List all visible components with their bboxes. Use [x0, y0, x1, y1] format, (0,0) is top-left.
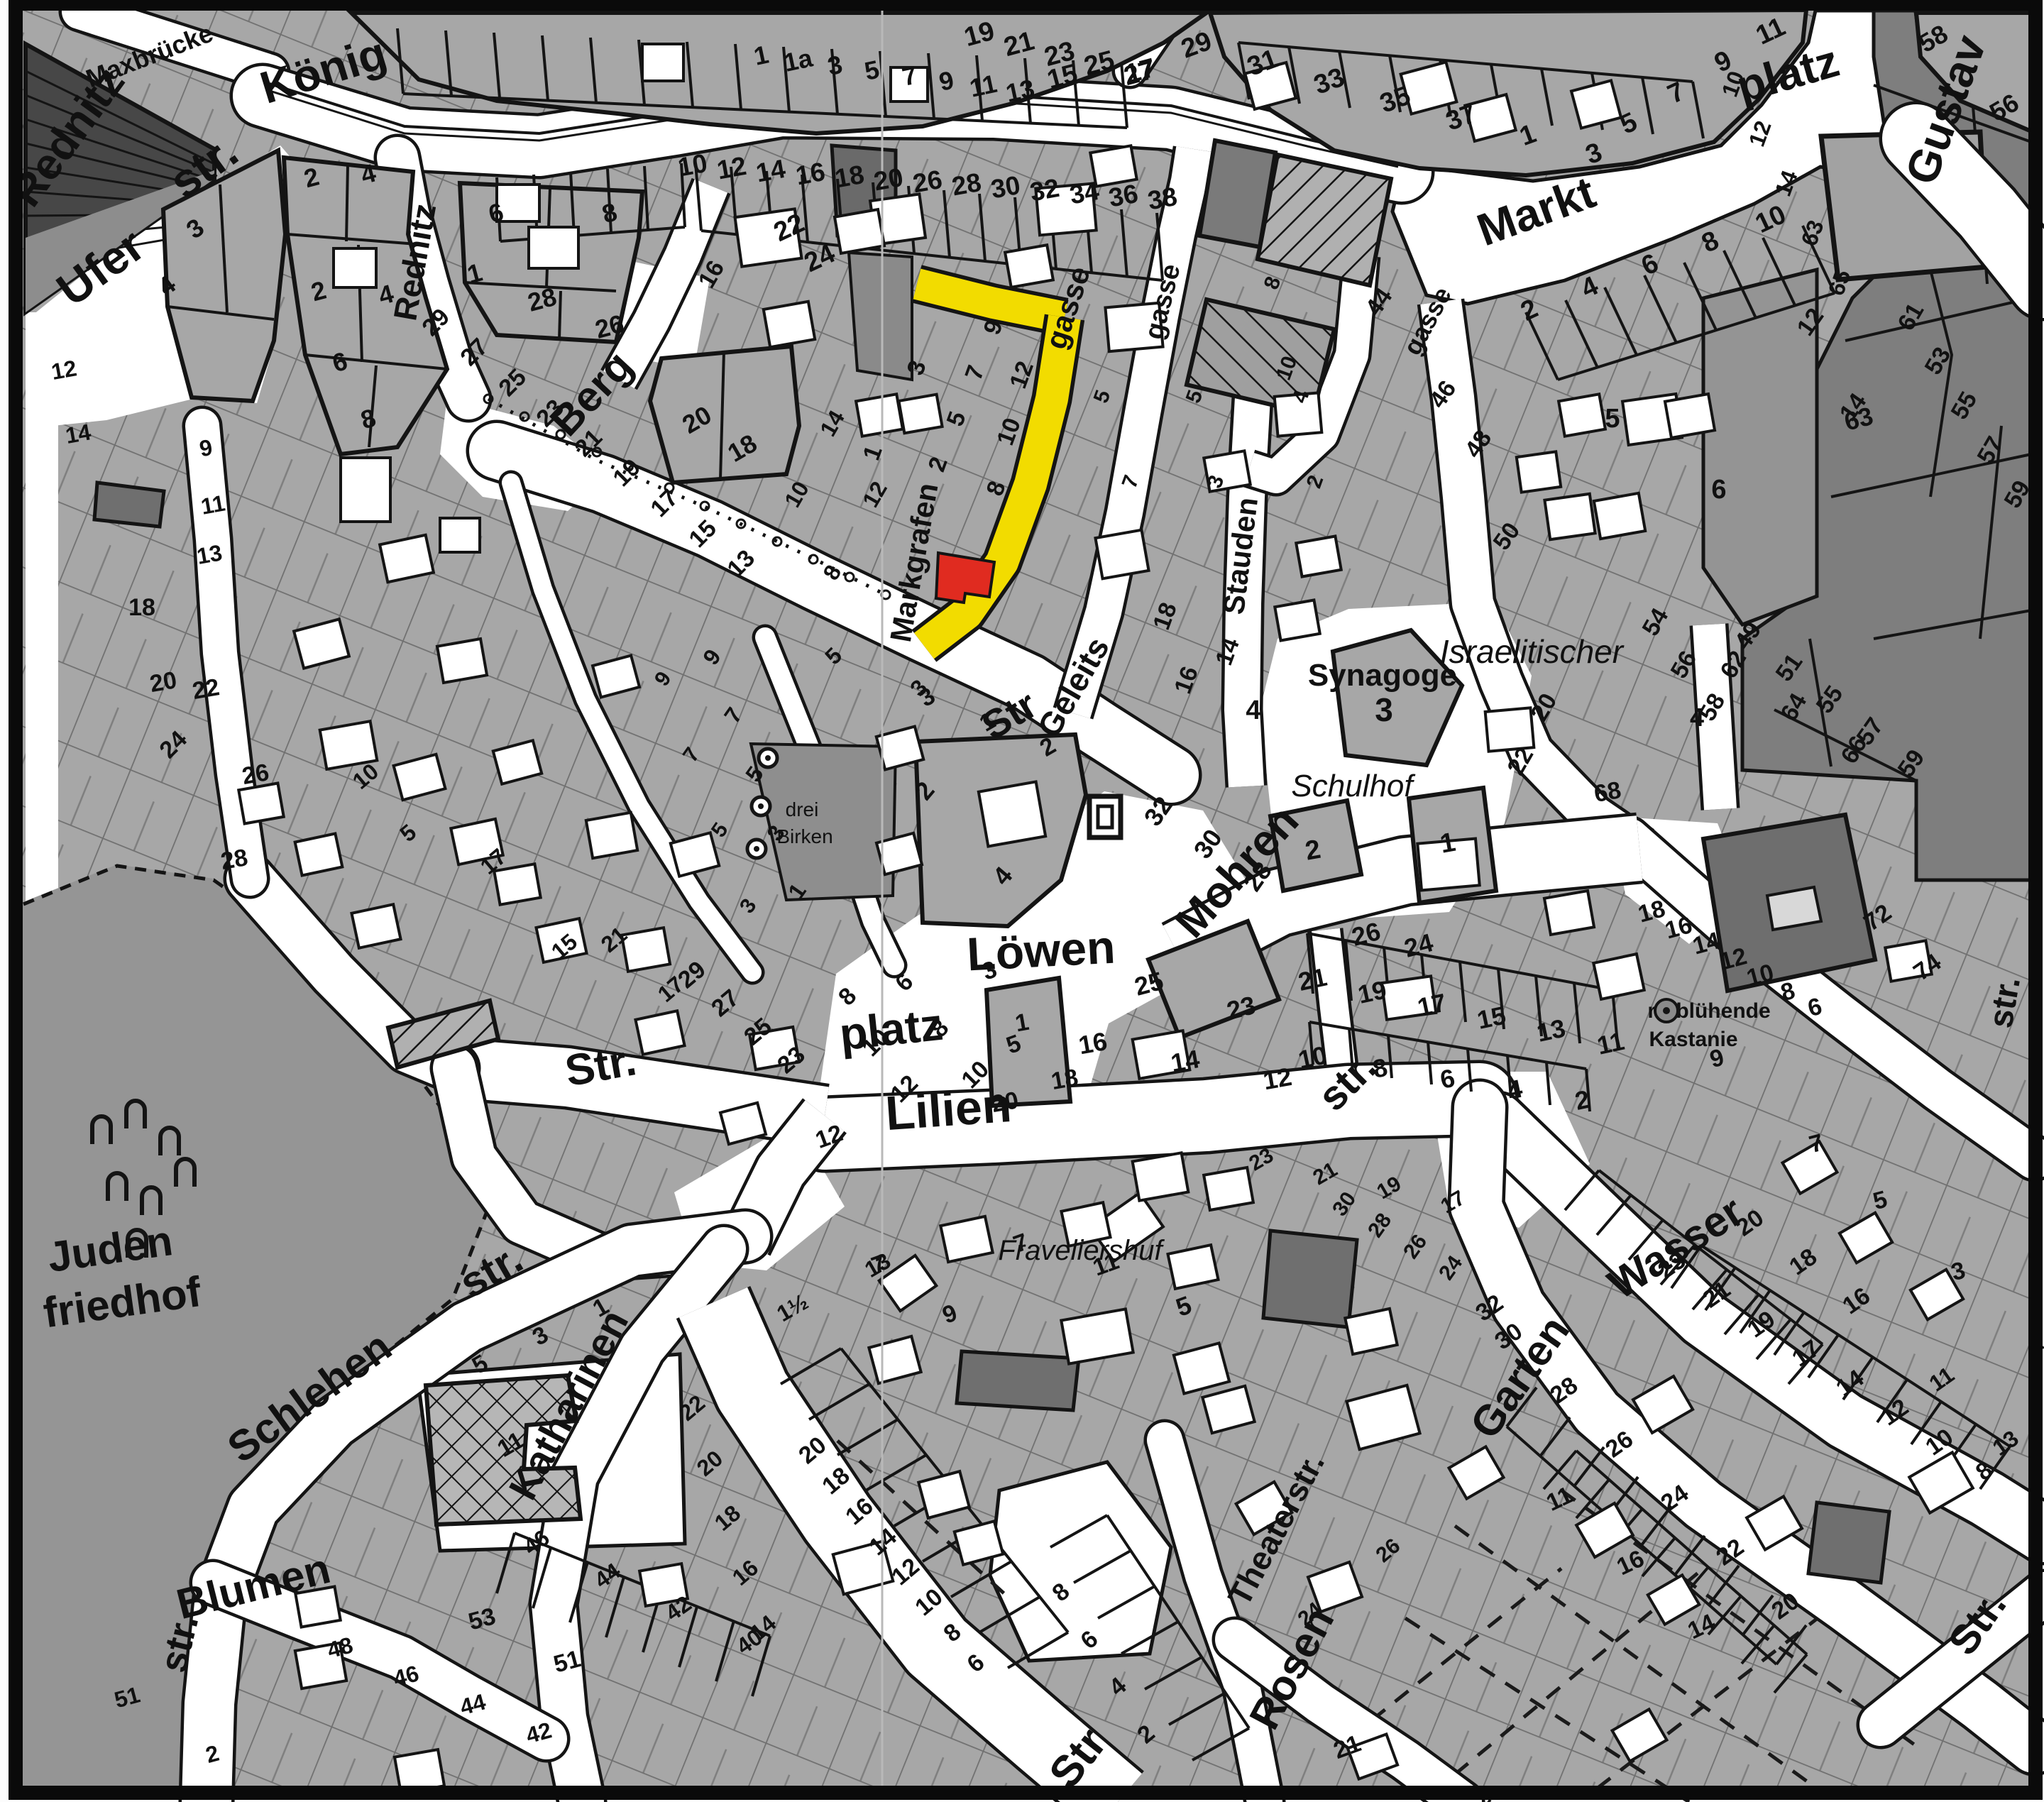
- svg-text:17: 17: [1415, 988, 1449, 1022]
- svg-text:68: 68: [1592, 776, 1623, 808]
- svg-text:4: 4: [1246, 696, 1260, 725]
- svg-text:26: 26: [911, 165, 945, 199]
- svg-text:Israelitischer: Israelitischer: [1440, 633, 1625, 670]
- svg-text:16: 16: [793, 157, 828, 191]
- svg-text:drei: drei: [786, 798, 819, 820]
- svg-text:22: 22: [190, 674, 221, 705]
- svg-text:3: 3: [1375, 691, 1393, 728]
- svg-text:14: 14: [754, 154, 788, 188]
- svg-text:21: 21: [1296, 962, 1330, 996]
- svg-text:13: 13: [1534, 1013, 1568, 1048]
- svg-text:5: 5: [1605, 404, 1620, 434]
- svg-text:32: 32: [1028, 173, 1062, 207]
- svg-text:Schulhof: Schulhof: [1291, 769, 1416, 803]
- svg-text:13: 13: [194, 539, 224, 569]
- svg-text:20: 20: [872, 163, 906, 197]
- svg-text:14: 14: [63, 419, 93, 449]
- svg-text:18: 18: [128, 594, 155, 621]
- svg-text:6: 6: [1711, 475, 1726, 505]
- svg-text:18: 18: [833, 160, 867, 194]
- svg-text:19: 19: [1356, 975, 1390, 1009]
- svg-text:12: 12: [49, 355, 78, 385]
- svg-text:20: 20: [148, 666, 179, 698]
- svg-text:12: 12: [715, 151, 749, 185]
- svg-text:26: 26: [240, 759, 271, 790]
- svg-text:18: 18: [1049, 1064, 1080, 1095]
- svg-text:28: 28: [950, 167, 984, 202]
- svg-text:Kastanie: Kastanie: [1649, 1028, 1737, 1051]
- svg-text:38: 38: [1145, 182, 1180, 216]
- svg-text:16: 16: [1077, 1026, 1110, 1060]
- svg-text:34: 34: [1067, 176, 1101, 210]
- svg-text:20: 20: [989, 1087, 1021, 1118]
- svg-text:14: 14: [1169, 1044, 1202, 1077]
- svg-text:10: 10: [676, 148, 710, 182]
- svg-text:15: 15: [1475, 1001, 1509, 1035]
- svg-text:36: 36: [1106, 179, 1141, 213]
- svg-text:Synagoge: Synagoge: [1308, 658, 1457, 693]
- svg-text:10: 10: [1296, 1040, 1330, 1075]
- svg-text:30: 30: [989, 170, 1023, 204]
- svg-text:13: 13: [1004, 74, 1038, 108]
- svg-text:11: 11: [199, 490, 227, 520]
- svg-text:12: 12: [1261, 1062, 1295, 1095]
- svg-text:28: 28: [219, 844, 250, 875]
